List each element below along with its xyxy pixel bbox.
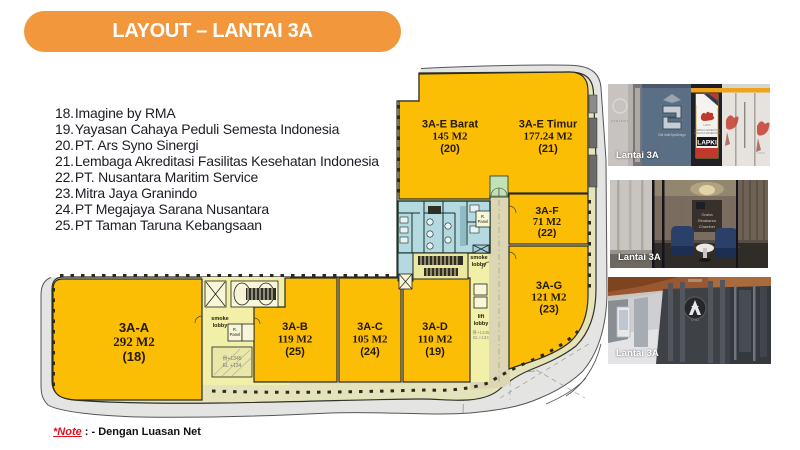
svg-text:121 M2: 121 M2 xyxy=(531,292,567,304)
svg-text:lift: lift xyxy=(478,314,485,320)
svg-text:GM InterSysDesign: GM InterSysDesign xyxy=(658,133,686,137)
svg-text:145 M2: 145 M2 xyxy=(432,131,468,143)
svg-text:lobby: lobby xyxy=(213,323,229,329)
svg-text:S T E I K O M: S T E I K O M xyxy=(611,119,630,123)
svg-text:3A-D: 3A-D xyxy=(422,321,448,333)
svg-text:3A-F: 3A-F xyxy=(535,205,559,217)
svg-text:LAPKI: LAPKI xyxy=(703,123,711,127)
svg-text:3A-A: 3A-A xyxy=(119,320,150,335)
svg-text:smoke: smoke xyxy=(470,255,487,261)
svg-text:EL +134: EL +134 xyxy=(223,363,242,369)
svg-text:lobby: lobby xyxy=(474,321,490,327)
svg-text:Chamber: Chamber xyxy=(699,224,716,229)
svg-text:Binakarsa: Binakarsa xyxy=(698,218,717,223)
svg-text:3A-C: 3A-C xyxy=(357,321,383,333)
svg-text:177.24 M2: 177.24 M2 xyxy=(524,131,573,143)
svg-text:EL+134: EL+134 xyxy=(473,335,489,340)
svg-text:(24): (24) xyxy=(360,346,380,358)
svg-text:(18): (18) xyxy=(122,349,145,364)
svg-text:(19): (19) xyxy=(425,346,445,358)
svg-text:A T M A: A T M A xyxy=(691,319,700,322)
svg-text:LAPKI: LAPKI xyxy=(757,151,766,155)
svg-text:(23): (23) xyxy=(539,304,559,316)
svg-text:LAPKI: LAPKI xyxy=(697,140,717,147)
svg-text:(21): (21) xyxy=(538,143,558,155)
svg-text:119 M2: 119 M2 xyxy=(278,334,313,346)
svg-text:Panel: Panel xyxy=(230,332,241,337)
svg-text:3A-E Timur: 3A-E Timur xyxy=(519,119,578,131)
svg-text:(22): (22) xyxy=(538,227,557,239)
svg-text:110 M2: 110 M2 xyxy=(418,334,453,346)
svg-text:Panel: Panel xyxy=(478,219,489,224)
svg-text:3A-E Barat: 3A-E Barat xyxy=(422,119,479,131)
svg-text:3A-B: 3A-B xyxy=(282,321,308,333)
svg-text:smoke: smoke xyxy=(211,316,228,322)
svg-text:FASILITAS KESEHATAN: FASILITAS KESEHATAN xyxy=(694,132,721,135)
svg-text:骨+1345: 骨+1345 xyxy=(222,356,241,362)
svg-text:(25): (25) xyxy=(285,346,305,358)
svg-text:Graha: Graha xyxy=(701,212,713,217)
svg-text:(20): (20) xyxy=(440,143,460,155)
svg-text:105 M2: 105 M2 xyxy=(352,334,388,346)
svg-text:292 M2: 292 M2 xyxy=(113,334,155,349)
svg-text:3A-G: 3A-G xyxy=(536,280,562,292)
